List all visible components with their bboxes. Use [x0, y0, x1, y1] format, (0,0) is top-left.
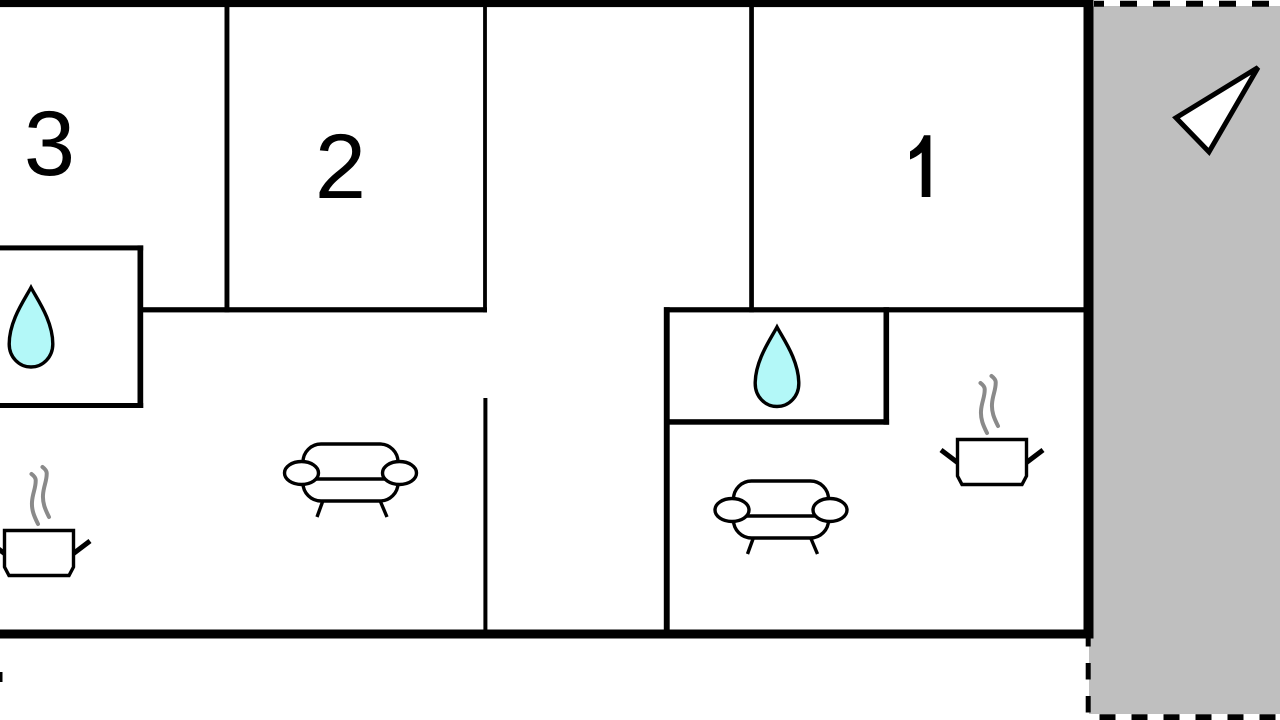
svg-text:2: 2 — [315, 116, 366, 218]
svg-text:3: 3 — [24, 93, 75, 195]
